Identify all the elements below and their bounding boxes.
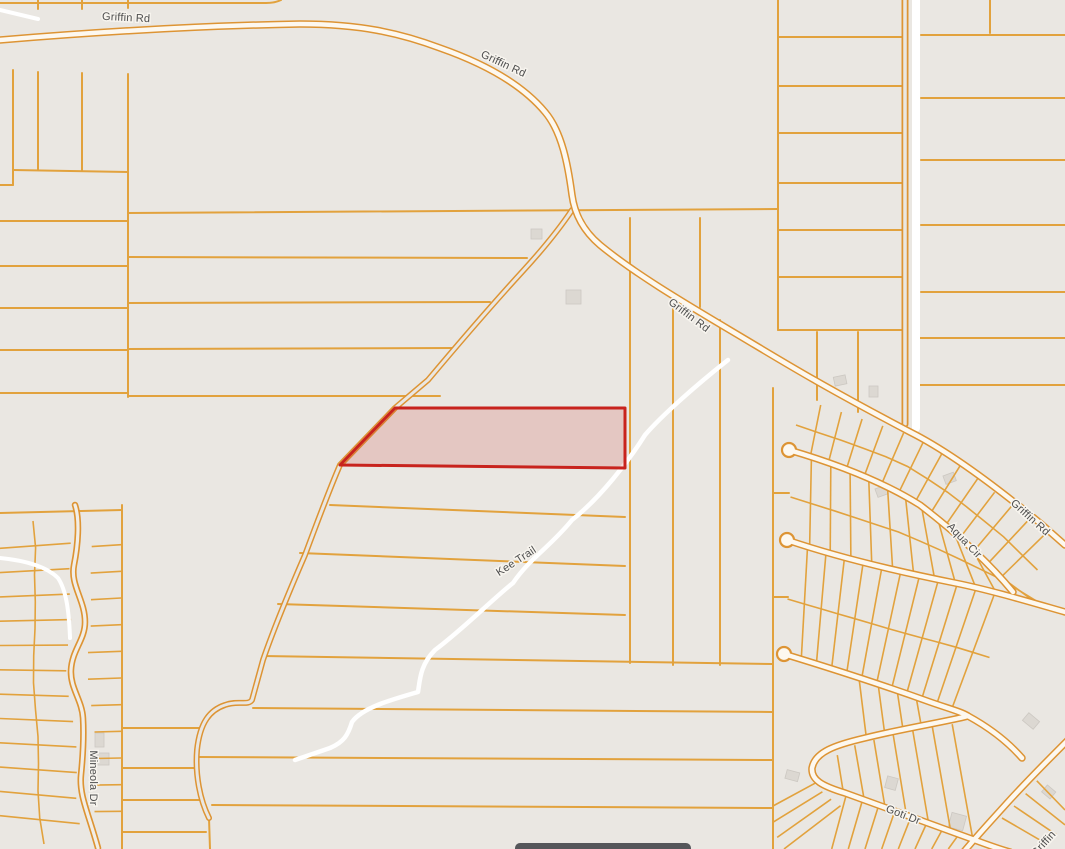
bottom-toolbar[interactable] xyxy=(515,843,691,849)
parcel-fan-line xyxy=(95,731,122,732)
map-viewport[interactable]: Griffin Rd Griffin Rd Griffin Rd Griffin… xyxy=(0,0,1065,849)
road-label-griffin-rd-top: Griffin Rd xyxy=(102,11,151,26)
road-label-mineola-dr: Mineola Dr xyxy=(87,750,99,805)
parcel-fan-line xyxy=(91,705,121,706)
parcel-map-canvas[interactable]: Griffin Rd Griffin Rd Griffin Rd Griffin… xyxy=(0,0,1065,849)
